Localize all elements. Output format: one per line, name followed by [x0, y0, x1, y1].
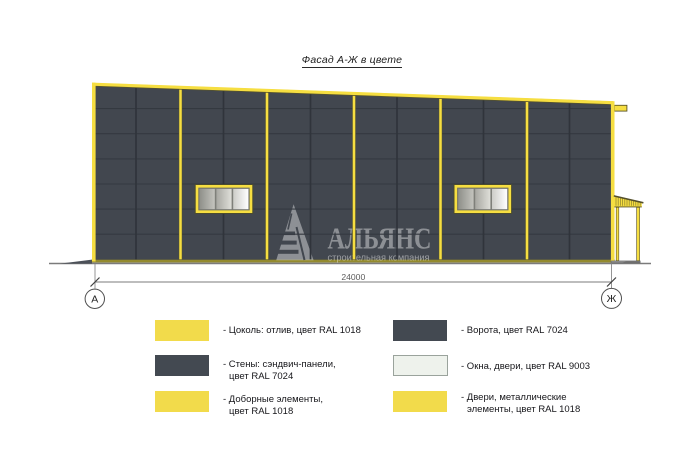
svg-text:А: А: [91, 294, 98, 306]
svg-text:Ж: Ж: [607, 293, 617, 305]
svg-text:24000: 24000: [341, 272, 365, 282]
svg-text:АЛЬЯНС: АЛЬЯНС: [328, 220, 432, 255]
svg-text:строительная компания: строительная компания: [328, 253, 430, 263]
